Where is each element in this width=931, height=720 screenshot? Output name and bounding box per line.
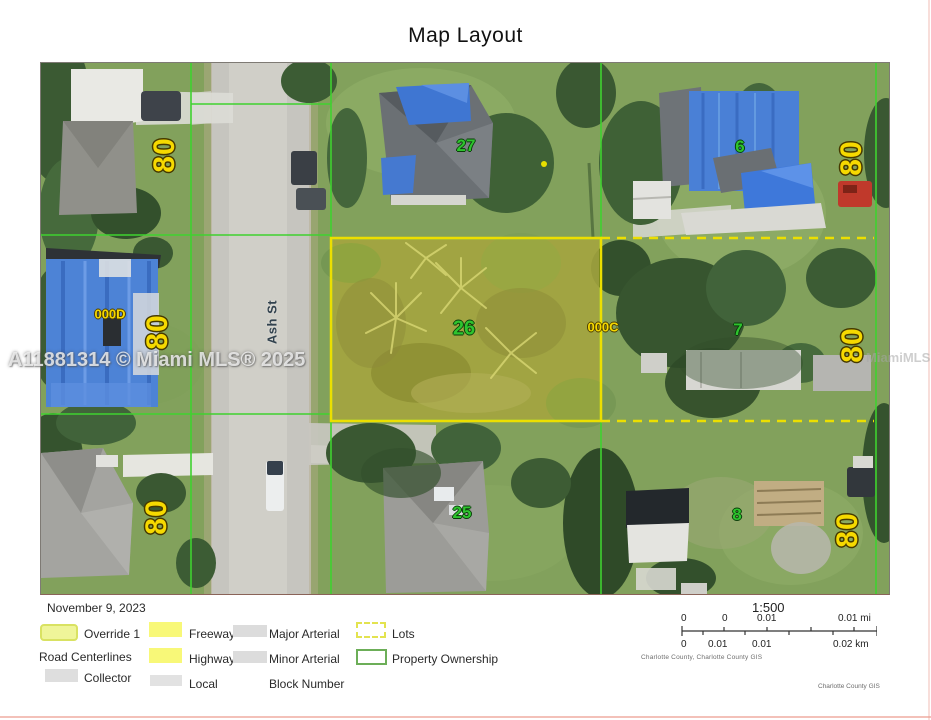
scale-bar: [681, 624, 877, 638]
lot-width-label: 80: [141, 314, 175, 349]
scale-mi-tick: 0.01: [757, 613, 776, 624]
legend-label-minor-arterial: Minor Arterial: [269, 652, 340, 666]
footer-credit: Charlotte County GIS: [818, 683, 880, 690]
legend-label-road-centerlines: Road Centerlines: [39, 650, 132, 664]
lot-width-label: 80: [836, 327, 870, 362]
legend-label-highway: Highway: [189, 652, 235, 666]
truck-on-road: [266, 461, 284, 511]
legend-label-freeway: Freeway: [189, 627, 235, 641]
major-arterial-swatch: [233, 625, 267, 637]
parcel-number-25: 25: [453, 503, 472, 523]
page-title: Map Layout: [0, 24, 931, 48]
legend-label-property-ownership: Property Ownership: [392, 652, 498, 666]
lot-width-label: 80: [148, 137, 182, 172]
property-ownership-swatch: [356, 649, 387, 665]
minor-arterial-swatch: [233, 651, 267, 663]
scale-km-tick: 0.01: [708, 639, 727, 650]
parcel-number-27: 27: [457, 136, 476, 156]
collector-swatch: [45, 669, 78, 682]
scale-mi-tick: 0.01 mi: [838, 613, 871, 624]
legend-label-major-arterial: Major Arterial: [269, 627, 340, 641]
parcel-number-8: 8: [732, 505, 741, 525]
scale-attribution: Charlotte County, Charlotte County GIS: [641, 654, 762, 661]
legend-label-collector: Collector: [84, 671, 131, 685]
freeway-swatch: [149, 622, 182, 637]
map-date: November 9, 2023: [47, 601, 146, 615]
scale-km-tick: 0.02 km: [833, 639, 869, 650]
parcel-number-6: 6: [735, 137, 744, 157]
scale-km-tick: 0.01: [752, 639, 771, 650]
legend-label-block-number: Block Number: [269, 677, 344, 691]
mls-watermark-left: A11881314 © Miami MLS® 2025: [8, 349, 305, 372]
legend-label-lots: Lots: [392, 627, 415, 641]
page-edge-artifact: [0, 716, 931, 718]
lot-width-label: 80: [140, 499, 174, 534]
mls-watermark-right: MiamiMLS: [866, 350, 930, 365]
override-swatch: [40, 624, 78, 641]
lot-width-label: 80: [835, 140, 869, 175]
lot-width-label: 80: [831, 512, 865, 547]
parcel-number-26: 26: [453, 318, 475, 341]
local-swatch: [150, 675, 182, 686]
legend-label-local: Local: [189, 677, 218, 691]
scale-mi-tick: 0: [722, 613, 728, 624]
legend-label-override: Override 1: [84, 627, 140, 641]
block-label-000d: 000D: [94, 307, 125, 322]
block-label-000c: 000C: [587, 320, 618, 335]
scale-mi-tick: 0: [681, 613, 687, 624]
highway-swatch: [149, 648, 182, 663]
map-layout-page: Map Layout: [0, 0, 931, 720]
scale-km-tick: 0: [681, 639, 687, 650]
parcel-number-7: 7: [733, 320, 742, 340]
street-label-ash-st: Ash St: [265, 300, 280, 344]
lots-swatch: [356, 622, 386, 638]
